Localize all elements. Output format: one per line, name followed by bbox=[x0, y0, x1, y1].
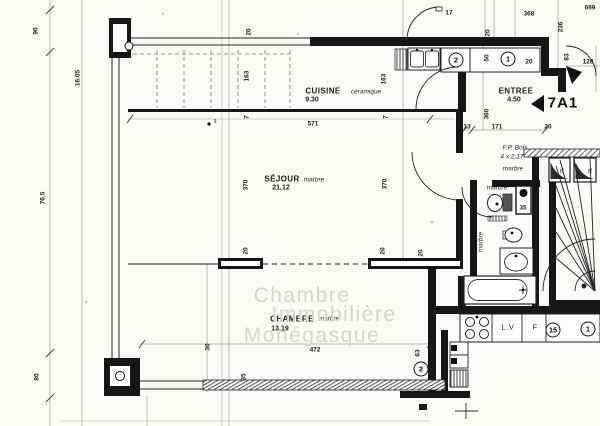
dimension-label: 75 bbox=[560, 168, 566, 174]
dimension-label: 35 bbox=[519, 205, 526, 212]
finish-annotation: 4 x 2,17 bbox=[500, 154, 523, 161]
dimension-label: L.V bbox=[501, 323, 514, 332]
dimension-label: 13 bbox=[463, 124, 470, 131]
finish-annotation: marbre bbox=[304, 177, 325, 184]
dimension-label: 20 bbox=[380, 247, 387, 254]
room-label: SÉJOUR bbox=[264, 175, 299, 184]
dimension-label: 16.05 bbox=[75, 70, 82, 86]
dimension-label: 20 bbox=[243, 247, 250, 254]
dimension-label: 699 bbox=[585, 5, 596, 12]
dimension-label: 50 bbox=[484, 54, 491, 61]
dimension-label: 63 bbox=[415, 349, 422, 356]
circled-number: 15 bbox=[546, 323, 561, 338]
dimension-label: 90 bbox=[33, 27, 40, 34]
dimension-label: 7 bbox=[244, 115, 251, 119]
dimension-label: 80 bbox=[34, 373, 41, 380]
dimension-label: 370 bbox=[243, 180, 250, 191]
circled-number: 1 bbox=[501, 52, 516, 67]
dimension-label: 17 bbox=[445, 10, 452, 17]
dimension-label: 20 bbox=[418, 249, 425, 256]
room-area-label: 4.50 bbox=[507, 97, 521, 104]
dimension-label: 20 bbox=[525, 59, 532, 66]
room-area-label: 9.30 bbox=[305, 97, 319, 104]
dimension-label: 35 bbox=[241, 373, 248, 380]
dimension-label: 163 bbox=[244, 71, 251, 82]
dimension-label: 9 bbox=[214, 119, 217, 125]
dimension-label: 236 bbox=[558, 22, 565, 33]
floor-plan-page: CUISINE9.30céramiqueENTREE4.50SÉJOUR21.1… bbox=[0, 0, 600, 426]
circled-number: 2 bbox=[414, 362, 429, 377]
dimension-label: 370 bbox=[382, 179, 389, 190]
circled-number: 2 bbox=[449, 53, 464, 68]
dimension-label: 171 bbox=[492, 124, 503, 131]
dimension-label: 128 bbox=[583, 59, 594, 66]
dimension-label: 83 bbox=[564, 53, 571, 60]
finish-annotation: marbre bbox=[478, 232, 485, 253]
dimension-label: 571 bbox=[308, 121, 319, 128]
finish-annotation: céramique bbox=[351, 89, 381, 96]
dimension-label: 20 bbox=[485, 29, 492, 36]
room-label: CUISINE bbox=[305, 87, 340, 96]
watermark-text: Monégasque bbox=[244, 324, 380, 348]
dimension-label: 7 bbox=[383, 115, 390, 119]
circled-number: 1 bbox=[581, 322, 596, 337]
unit-label: 7A1 bbox=[548, 95, 579, 112]
dimension-label: 20 bbox=[544, 124, 551, 131]
dimension-label: 20 bbox=[246, 28, 253, 35]
dimension-label: 368 bbox=[524, 11, 535, 18]
dimension-label: 360 bbox=[484, 109, 491, 120]
finish-annotation: marbre bbox=[487, 185, 508, 192]
room-area-label: 21.12 bbox=[272, 185, 290, 192]
finish-annotation: marbre bbox=[503, 166, 524, 173]
dimension-label: 30 bbox=[205, 343, 212, 350]
finish-annotation: F.P. Bois bbox=[503, 145, 528, 152]
room-label: ENTREE bbox=[499, 87, 534, 96]
dimension-label: 76.5 bbox=[40, 192, 47, 205]
dimension-label: 163 bbox=[381, 74, 388, 85]
dimension-label: F bbox=[532, 323, 537, 332]
plan-labels: CUISINE9.30céramiqueENTREE4.50SÉJOUR21.1… bbox=[0, 0, 600, 426]
dimension-label: 75 bbox=[588, 168, 594, 174]
